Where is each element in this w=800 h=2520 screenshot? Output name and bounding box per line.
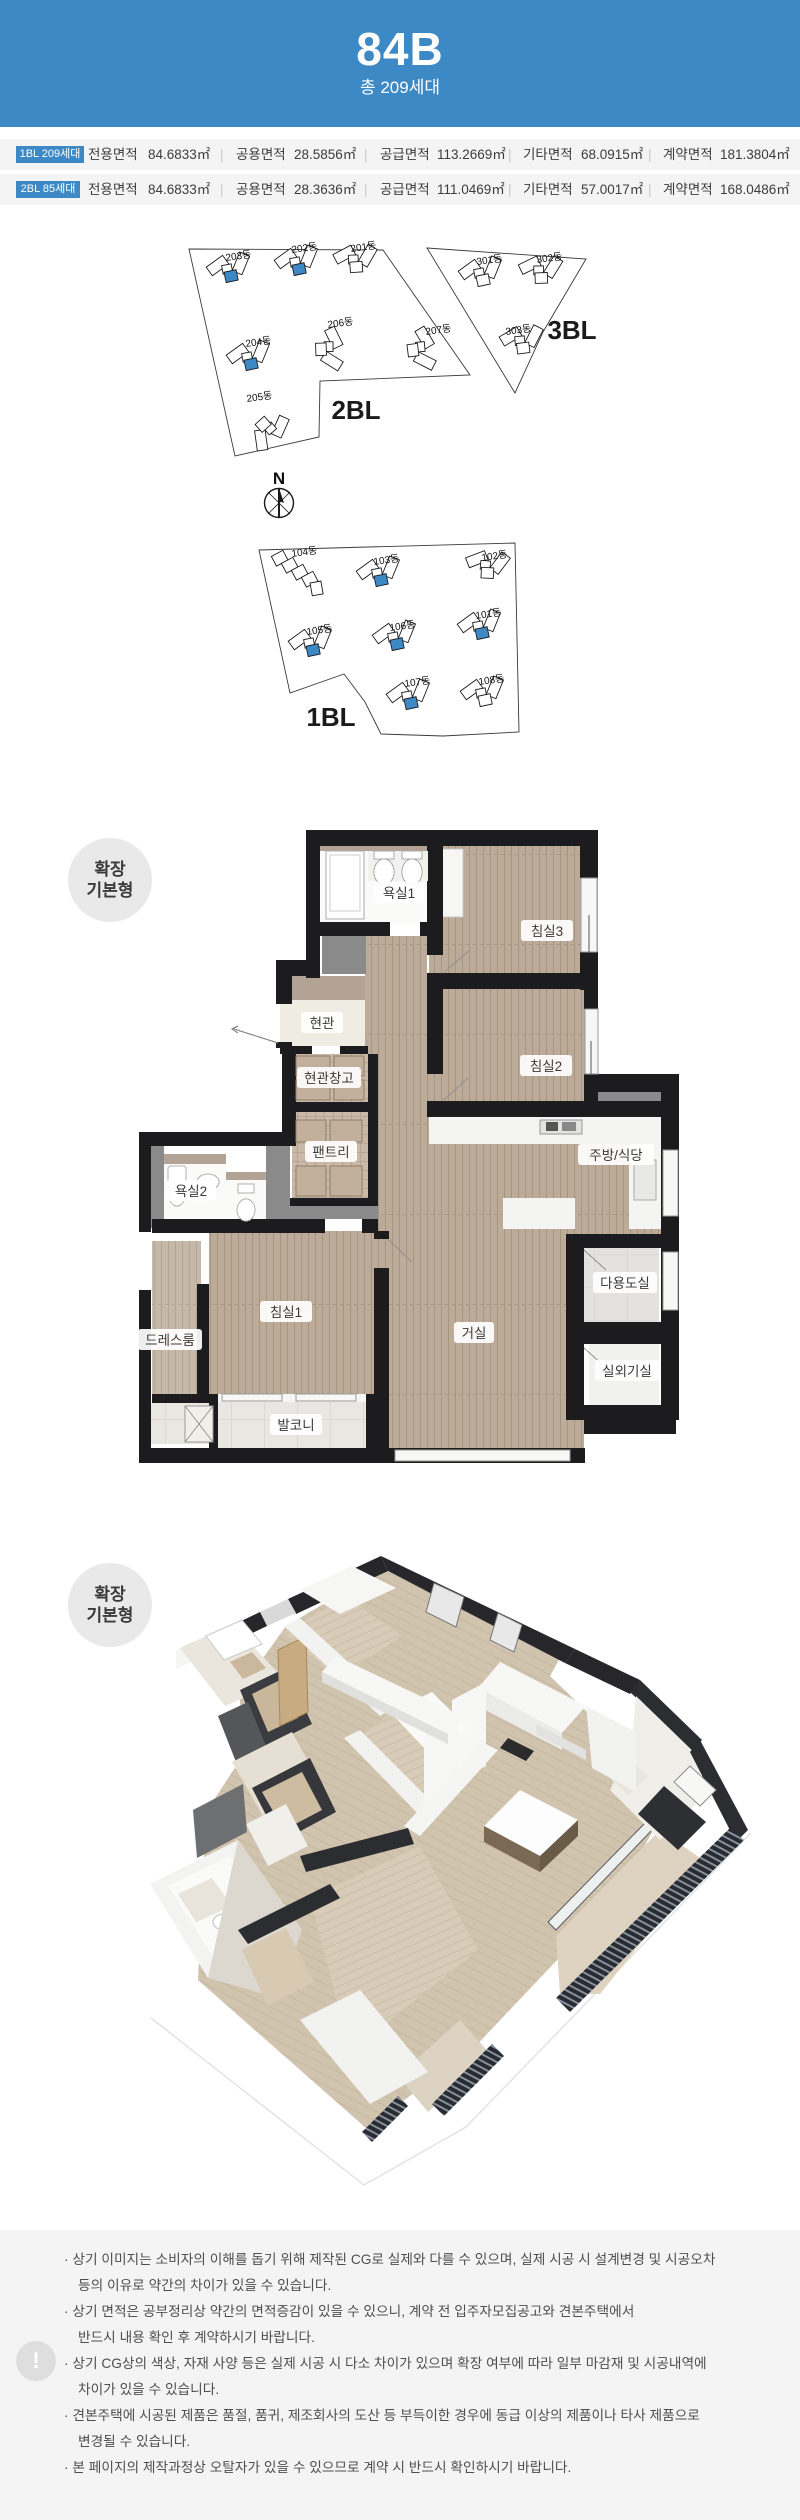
svg-text:206동: 206동 (327, 315, 354, 330)
svg-text:주방/식당: 주방/식당 (589, 1148, 642, 1163)
svg-text:203동: 203동 (225, 248, 252, 263)
svg-text:3BL: 3BL (547, 315, 596, 345)
svg-text:침실1: 침실1 (270, 1305, 302, 1320)
svg-text:104동: 104동 (291, 544, 318, 559)
svg-text:실외기실: 실외기실 (602, 1364, 652, 1379)
svg-text:침실3: 침실3 (531, 924, 563, 939)
svg-text:침실2: 침실2 (530, 1059, 562, 1074)
svg-text:현관창고: 현관창고 (304, 1071, 354, 1086)
svg-text:발코니: 발코니 (277, 1418, 314, 1433)
svg-text:욕실2: 욕실2 (175, 1184, 207, 1199)
svg-text:거실: 거실 (462, 1326, 487, 1341)
svg-text:2BL: 2BL (331, 395, 380, 425)
svg-text:현관: 현관 (310, 1016, 335, 1031)
svg-text:207동: 207동 (425, 322, 452, 337)
svg-text:욕실1: 욕실1 (383, 886, 415, 901)
svg-text:드레스룸: 드레스룸 (145, 1333, 195, 1348)
svg-text:N: N (273, 469, 285, 488)
svg-text:1BL: 1BL (306, 702, 355, 732)
svg-text:205동: 205동 (246, 389, 273, 404)
svg-text:팬트리: 팬트리 (312, 1145, 349, 1160)
svg-text:다용도실: 다용도실 (600, 1276, 650, 1291)
